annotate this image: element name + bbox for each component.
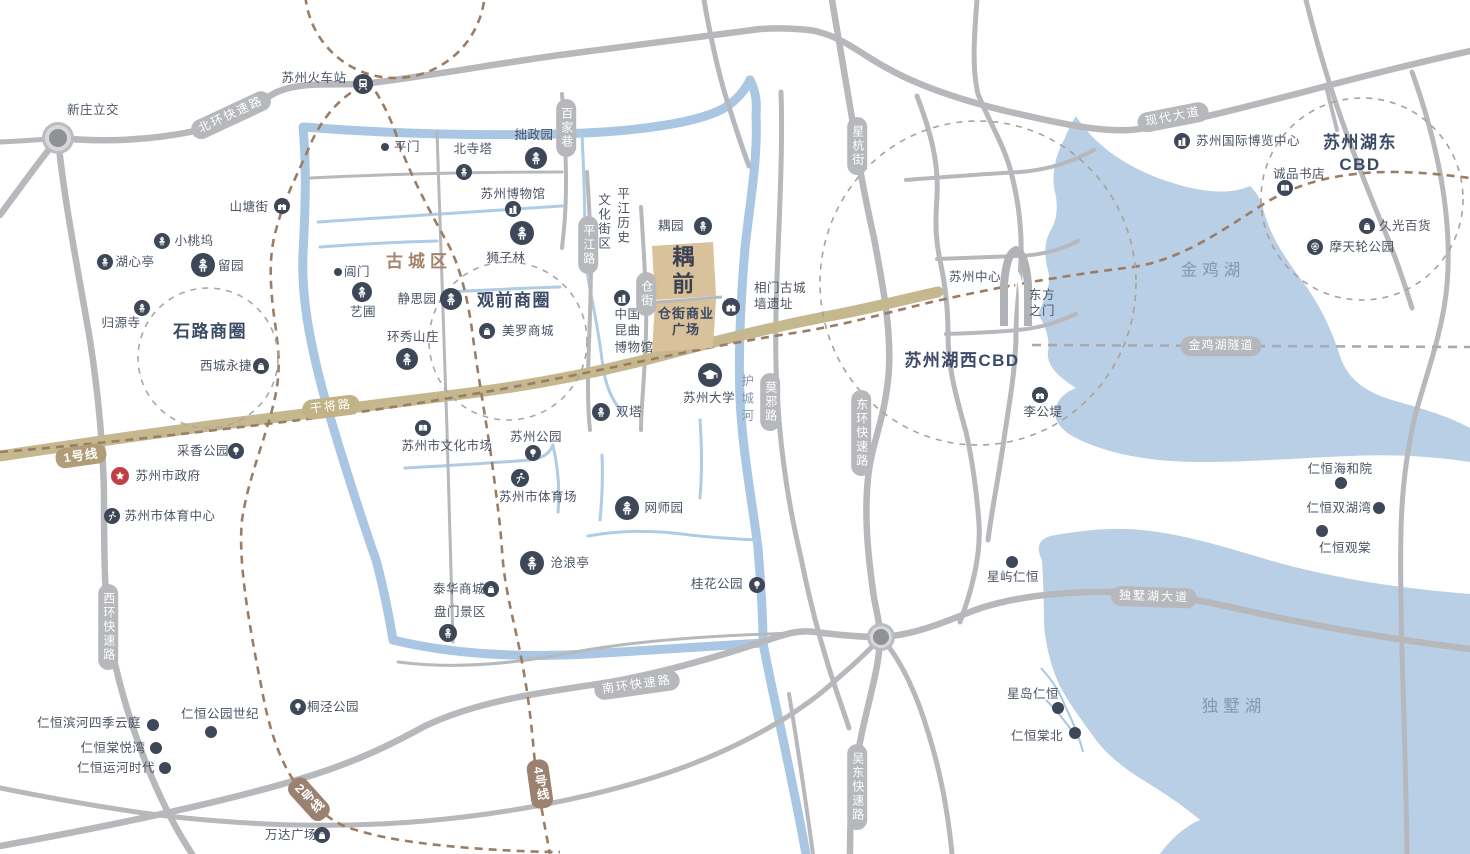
shuanghuwan-label: 仁恒双湖湾 xyxy=(1306,500,1371,516)
panmen-label: 盘门景区 xyxy=(434,604,486,620)
haiheyuan-label: 仁恒海和院 xyxy=(1307,461,1372,477)
canglangting-icon xyxy=(520,551,544,575)
taihua-icon xyxy=(483,581,499,597)
ouyuan-icon xyxy=(694,217,712,235)
jinji-lake-label: 金鸡湖 xyxy=(1181,260,1246,281)
xingdao-dot xyxy=(1052,702,1064,714)
expo-center-label: 苏州国际博览中心 xyxy=(1196,133,1300,149)
pingmen-dot xyxy=(381,143,389,151)
xiaotaowu-label: 小桃坞 xyxy=(174,233,213,249)
xicheng-icon xyxy=(253,358,269,374)
shuangta-label: 双塔 xyxy=(616,404,642,420)
ligongdi-icon xyxy=(1032,387,1048,403)
modern-avenue-pill: 现代大道 xyxy=(1136,101,1210,134)
wangshiyuan-label: 网师园 xyxy=(644,500,683,516)
changmen-label: 阊门 xyxy=(344,264,370,280)
meiluo-icon xyxy=(479,323,495,339)
railway-station-icon xyxy=(353,74,373,94)
gucheng-district-label: 古城区 xyxy=(386,251,452,273)
binhe-dot xyxy=(147,719,159,731)
city-stadium-label: 苏州市体育场 xyxy=(499,489,577,505)
huxinting-icon xyxy=(97,254,113,270)
tangbei-label: 仁恒棠北 xyxy=(1011,728,1063,744)
xingyu-renheng-label: 星屿仁恒 xyxy=(987,569,1039,585)
ferris-wheel-park-label: 摩天轮公园 xyxy=(1329,239,1394,255)
suzhou-area-map: 新庄立交苏州火车站平门北寺塔拙政园苏州博物馆狮子林山塘街小桃坞湖心亭留园阊门艺圃… xyxy=(0,0,1470,854)
cangjie-street-pill: 仓街 xyxy=(636,272,656,316)
yipu-label: 艺圃 xyxy=(350,304,376,320)
guihua-park-label: 桂花公园 xyxy=(691,576,743,592)
project-logo-label: 耦前 xyxy=(667,245,696,299)
yunhe-dot xyxy=(159,762,171,774)
gongyuan-shiji-label: 仁恒公园世纪 xyxy=(181,706,259,722)
pingjiang-history-2-label: 文化街区 xyxy=(595,193,611,251)
ferris-icon xyxy=(1307,239,1323,255)
hudong-cbd-label: 苏州湖东CBD xyxy=(1305,132,1415,176)
culture-market-label: 苏州市文化市场 xyxy=(401,438,492,454)
chengpin-icon xyxy=(1277,180,1293,196)
moat-huchenghe-label: 护城河 xyxy=(738,374,754,427)
guihua-icon xyxy=(749,577,765,593)
jingsiyuan-icon xyxy=(440,288,462,310)
shizilin-label: 狮子林 xyxy=(486,250,525,266)
baijiaxiang-pill: 百家巷 xyxy=(556,99,576,157)
tangyuewan-dot xyxy=(150,742,162,754)
suzhou-museum-icon xyxy=(505,201,521,217)
panmen-icon xyxy=(439,624,457,642)
south-ring-road-pill: 南环快速路 xyxy=(593,669,681,700)
suzhou-government-label: 苏州市政府 xyxy=(135,468,200,484)
zhuozhengyuan-icon xyxy=(525,147,547,169)
jinji-lake-tunnel-pill: 金鸡湖隧道 xyxy=(1180,336,1261,356)
suzhou-park-icon xyxy=(525,445,541,461)
huanxiu-icon xyxy=(396,348,418,370)
beisita-icon xyxy=(456,164,472,180)
stadium-icon xyxy=(511,469,529,487)
huanxiushanzhuang-label: 环秀山庄 xyxy=(387,329,439,345)
xiaotaowu-icon xyxy=(154,233,170,249)
guiyuansi-icon xyxy=(134,300,150,316)
ganjiang-road-pill: 干将路 xyxy=(301,394,361,421)
west-ring-road-pill: 西环快速路 xyxy=(98,584,118,670)
zhuozhengyuan-label: 拙政园 xyxy=(514,127,553,143)
xiangmen-wall-label: 相门古城 墙遗址 xyxy=(754,280,806,313)
kunqu-museum-label: 中国 昆曲 博物馆 xyxy=(614,307,653,356)
dushu-lake-avenue-pill: 独墅湖大道 xyxy=(1111,586,1198,609)
kunqu-icon xyxy=(614,290,630,306)
gongyuan-shiji-dot xyxy=(205,726,217,738)
pingjiang-history-1-label: 平江历史 xyxy=(614,187,630,245)
liuyuan-icon xyxy=(191,253,215,277)
shizilin-icon xyxy=(510,221,534,245)
shilu-circle-label: 石路商圈 xyxy=(173,321,247,343)
xinghang-street-pill: 星杭街 xyxy=(847,117,867,175)
wudong-road-pill: 吴东快速路 xyxy=(847,744,867,830)
east-ring-road-pill: 东环快速路 xyxy=(851,390,871,476)
xingdao-renheng-label: 星岛仁恒 xyxy=(1007,686,1059,702)
culture-market-icon xyxy=(415,420,431,436)
suzhou-center-label: 苏州中心 xyxy=(949,269,1001,285)
expo-icon xyxy=(1174,133,1190,149)
tangyuewan-label: 仁恒棠悦湾 xyxy=(80,740,145,756)
shuanghuwan-dot xyxy=(1373,502,1385,514)
suzhou-railway-station-label: 苏州火车站 xyxy=(281,70,346,86)
changmen-dot xyxy=(334,268,342,276)
jiuguang-icon xyxy=(1359,218,1375,234)
sports-center-label: 苏州市体育中心 xyxy=(124,508,215,524)
metro-line-1-badge: 1号线 xyxy=(54,442,107,469)
shuangta-icon xyxy=(592,403,610,421)
dongfangzhimen-label: 东方 之门 xyxy=(1029,287,1055,320)
metro-line-2-badge: 2号线 xyxy=(284,773,333,824)
shantangjie-icon xyxy=(274,198,290,214)
beisita-label: 北寺塔 xyxy=(453,141,492,157)
caixiang-park-label: 采香公园 xyxy=(177,443,229,459)
taihua-mall-label: 泰华商城 xyxy=(433,581,485,597)
wanda-plaza-label: 万达广场 xyxy=(265,827,317,843)
pingmen-label: 平门 xyxy=(394,139,420,155)
meiluo-mall-label: 美罗商城 xyxy=(502,323,554,339)
suzhou-university-label: 苏州大学 xyxy=(683,390,735,406)
ligongdi-label: 李公堤 xyxy=(1023,404,1062,420)
huxinting-label: 湖心亭 xyxy=(115,254,154,270)
wangshiyuan-icon xyxy=(615,496,639,520)
guiyuansi-label: 归源寺 xyxy=(101,315,140,331)
sports-center-icon xyxy=(104,508,120,524)
tongjing-park-label: 桐泾公园 xyxy=(307,699,359,715)
pingjiang-road-pill: 平江路 xyxy=(578,216,598,274)
university-icon xyxy=(698,363,722,387)
jiuguang-label: 久光百货 xyxy=(1379,218,1431,234)
guantang-label: 仁恒观棠 xyxy=(1319,540,1371,556)
cangjie-plaza-label: 仓街商业 广场 xyxy=(658,306,714,339)
xicheng-yongjie-label: 西城永捷 xyxy=(200,358,252,374)
haiheyuan-dot xyxy=(1335,477,1347,489)
label-layer: 新庄立交苏州火车站平门北寺塔拙政园苏州博物馆狮子林山塘街小桃坞湖心亭留园阊门艺圃… xyxy=(0,0,1470,854)
tongjing-icon xyxy=(290,699,306,715)
north-ring-road-pill: 北环快速路 xyxy=(188,88,274,142)
ouyuan-label: 耦园 xyxy=(658,218,684,234)
caixiang-icon xyxy=(228,443,244,459)
xingyu-dot xyxy=(1006,556,1018,568)
yipu-icon xyxy=(352,282,372,302)
guanqian-circle-label: 观前商圈 xyxy=(477,290,551,312)
huxi-cbd-label: 苏州湖西CBD xyxy=(904,350,1019,372)
metro-line-4-badge: 4号线 xyxy=(526,758,555,810)
chengpin-bookstore-label: 诚品书店 xyxy=(1273,166,1325,182)
government-icon xyxy=(111,467,129,485)
canglangting-label: 沧浪亭 xyxy=(550,555,589,571)
moye-road-pill: 莫邪路 xyxy=(760,373,780,431)
shantangjie-label: 山塘街 xyxy=(229,199,268,215)
wanda-icon xyxy=(314,827,330,843)
binhe-siji-label: 仁恒滨河四季云庭 xyxy=(37,715,141,731)
suzhou-museum-label: 苏州博物馆 xyxy=(480,186,545,202)
xiangmen-icon xyxy=(722,298,740,316)
yunhe-shidai-label: 仁恒运河时代 xyxy=(77,760,155,776)
dushu-lake-label: 独墅湖 xyxy=(1202,696,1267,717)
tangbei-dot xyxy=(1069,727,1081,739)
guantang-dot xyxy=(1316,525,1328,537)
xinzhuang-interchange-label: 新庄立交 xyxy=(67,102,119,118)
suzhou-park-label: 苏州公园 xyxy=(510,429,562,445)
jingsiyuan-label: 静思园 xyxy=(397,291,436,307)
liuyuan-label: 留园 xyxy=(218,258,244,274)
